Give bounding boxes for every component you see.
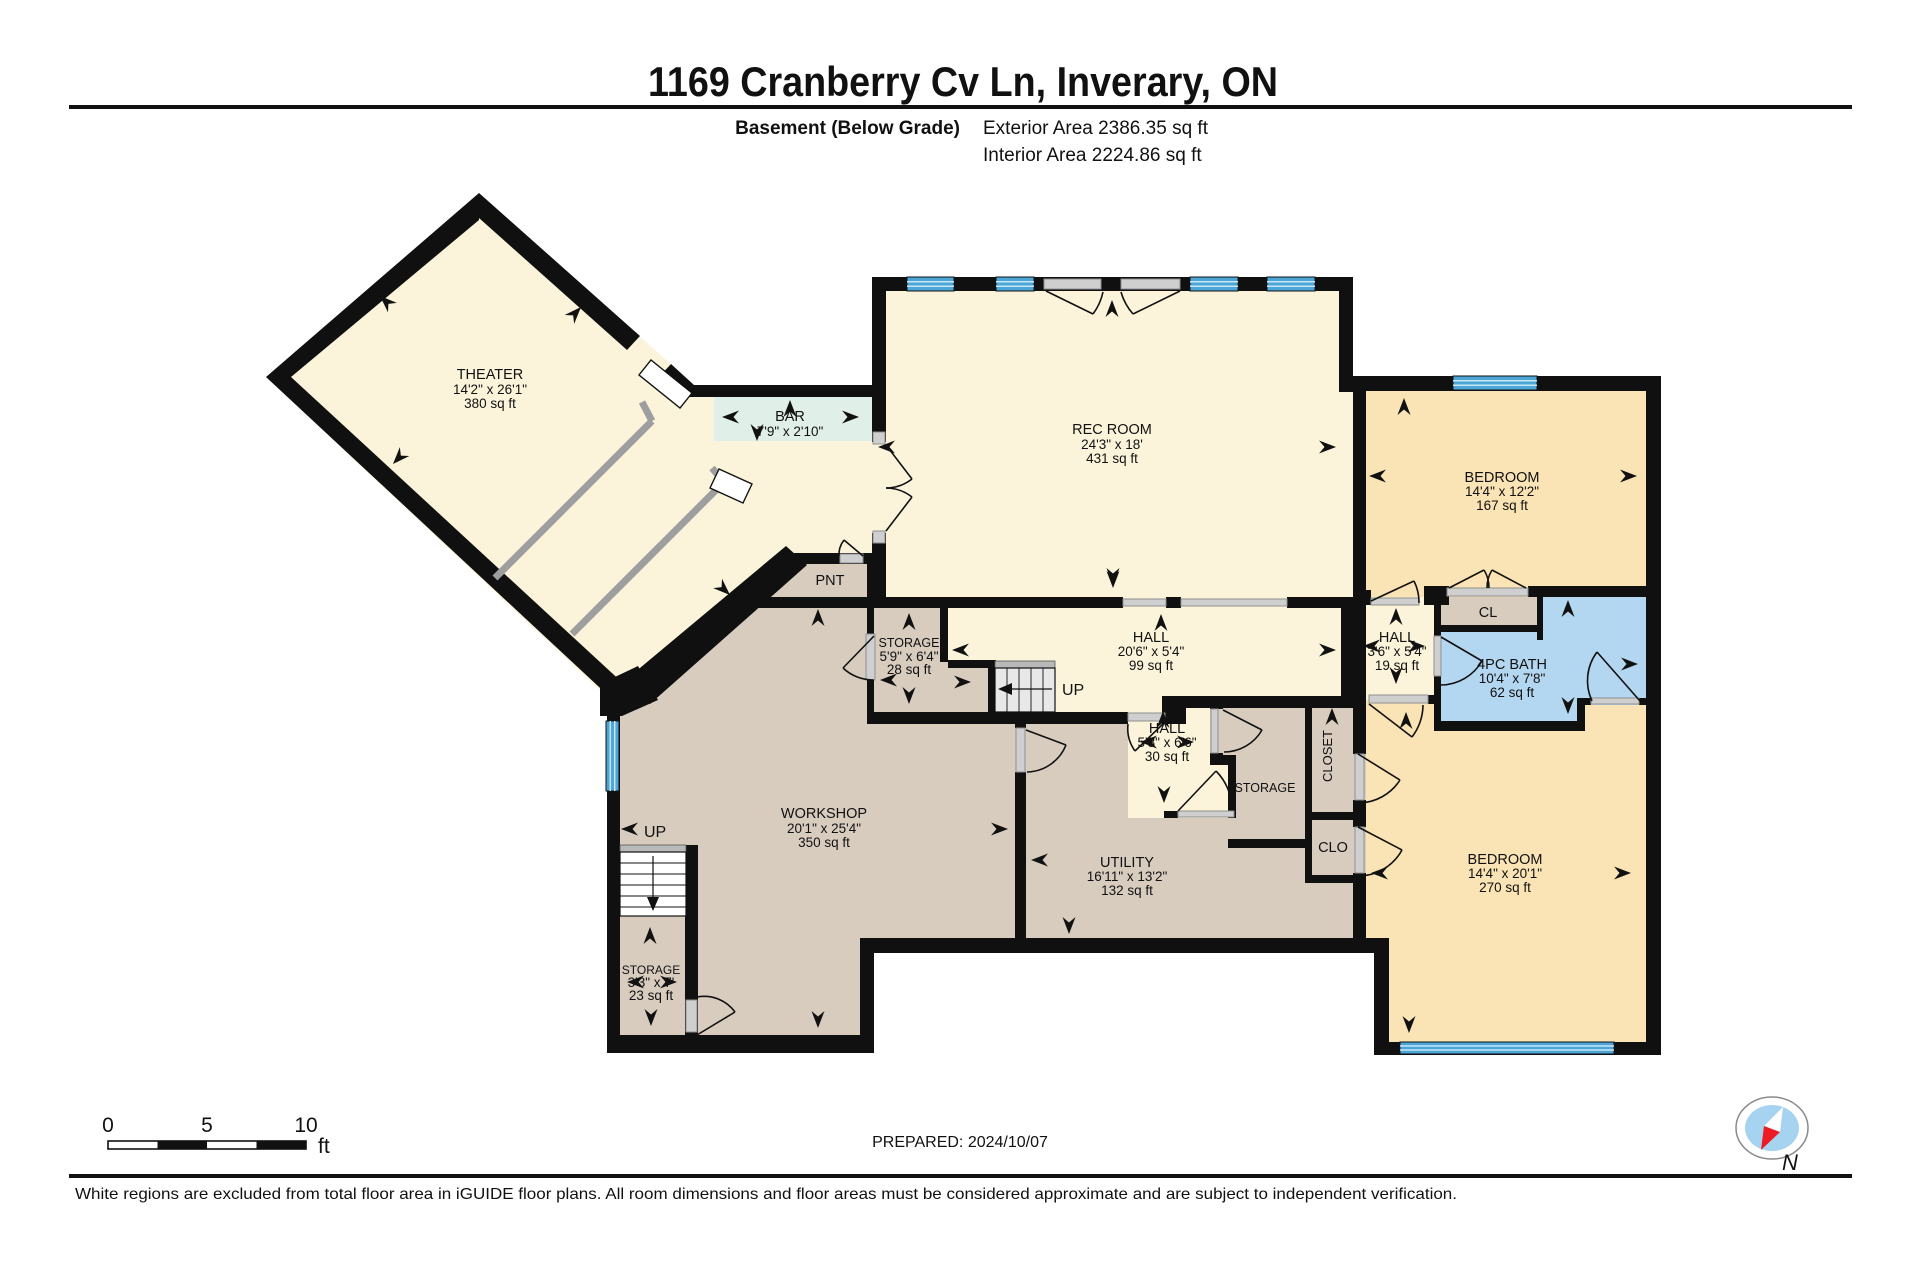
svg-text:14'4" x 12'2": 14'4" x 12'2"	[1465, 484, 1539, 499]
svg-text:UP: UP	[1062, 682, 1084, 699]
svg-text:10'4" x 7'8": 10'4" x 7'8"	[1479, 671, 1546, 686]
svg-text:62 sq ft: 62 sq ft	[1490, 685, 1535, 700]
svg-text:16'11" x 13'2": 16'11" x 13'2"	[1087, 869, 1168, 884]
svg-text:Basement (Below Grade): Basement (Below Grade)	[735, 118, 960, 139]
svg-text:19 sq ft: 19 sq ft	[1375, 658, 1420, 673]
svg-text:28 sq ft: 28 sq ft	[887, 662, 932, 677]
svg-text:14'4" x 20'1": 14'4" x 20'1"	[1468, 866, 1542, 881]
svg-text:270 sq ft: 270 sq ft	[1479, 880, 1531, 895]
svg-text:14'2" x 26'1": 14'2" x 26'1"	[453, 382, 527, 397]
svg-text:7'9" x 2'10": 7'9" x 2'10"	[757, 424, 824, 439]
svg-text:1169 Cranberry Cv Ln, Inverary: 1169 Cranberry Cv Ln, Inverary, ON	[648, 58, 1278, 105]
svg-text:431 sq ft: 431 sq ft	[1086, 451, 1138, 466]
svg-text:CLO: CLO	[1318, 840, 1348, 856]
svg-text:380 sq ft: 380 sq ft	[464, 396, 516, 411]
svg-text:ft: ft	[318, 1135, 330, 1158]
svg-text:167 sq ft: 167 sq ft	[1476, 498, 1528, 513]
svg-text:Interior Area 2224.86 sq ft: Interior Area 2224.86 sq ft	[983, 145, 1202, 166]
svg-text:23 sq ft: 23 sq ft	[629, 988, 674, 1003]
svg-text:STORAGE: STORAGE	[1235, 781, 1296, 795]
svg-text:REC ROOM: REC ROOM	[1072, 422, 1152, 438]
svg-text:0: 0	[102, 1114, 114, 1137]
svg-text:PNT: PNT	[816, 573, 845, 589]
svg-text:CLOSET: CLOSET	[1320, 730, 1335, 782]
svg-text:132 sq ft: 132 sq ft	[1101, 883, 1153, 898]
svg-text:Exterior Area 2386.35 sq ft: Exterior Area 2386.35 sq ft	[983, 118, 1209, 139]
svg-text:N: N	[1782, 1150, 1798, 1175]
svg-text:STORAGE: STORAGE	[879, 636, 940, 650]
svg-text:20'6" x 5'4": 20'6" x 5'4"	[1118, 644, 1185, 659]
svg-text:White regions are excluded fro: White regions are excluded from total fl…	[75, 1186, 1457, 1203]
svg-text:30 sq ft: 30 sq ft	[1145, 749, 1190, 764]
svg-text:5: 5	[201, 1114, 213, 1137]
svg-text:20'1" x 25'4": 20'1" x 25'4"	[787, 821, 861, 836]
svg-text:PREPARED: 2024/10/07: PREPARED: 2024/10/07	[872, 1134, 1048, 1151]
svg-text:10: 10	[294, 1114, 317, 1137]
svg-text:CL: CL	[1479, 605, 1498, 621]
svg-text:24'3" x 18': 24'3" x 18'	[1081, 437, 1143, 452]
svg-text:99 sq ft: 99 sq ft	[1129, 658, 1174, 673]
svg-text:THEATER: THEATER	[457, 367, 524, 383]
svg-text:UP: UP	[644, 824, 666, 841]
svg-text:WORKSHOP: WORKSHOP	[781, 806, 867, 822]
svg-text:350 sq ft: 350 sq ft	[798, 835, 850, 850]
